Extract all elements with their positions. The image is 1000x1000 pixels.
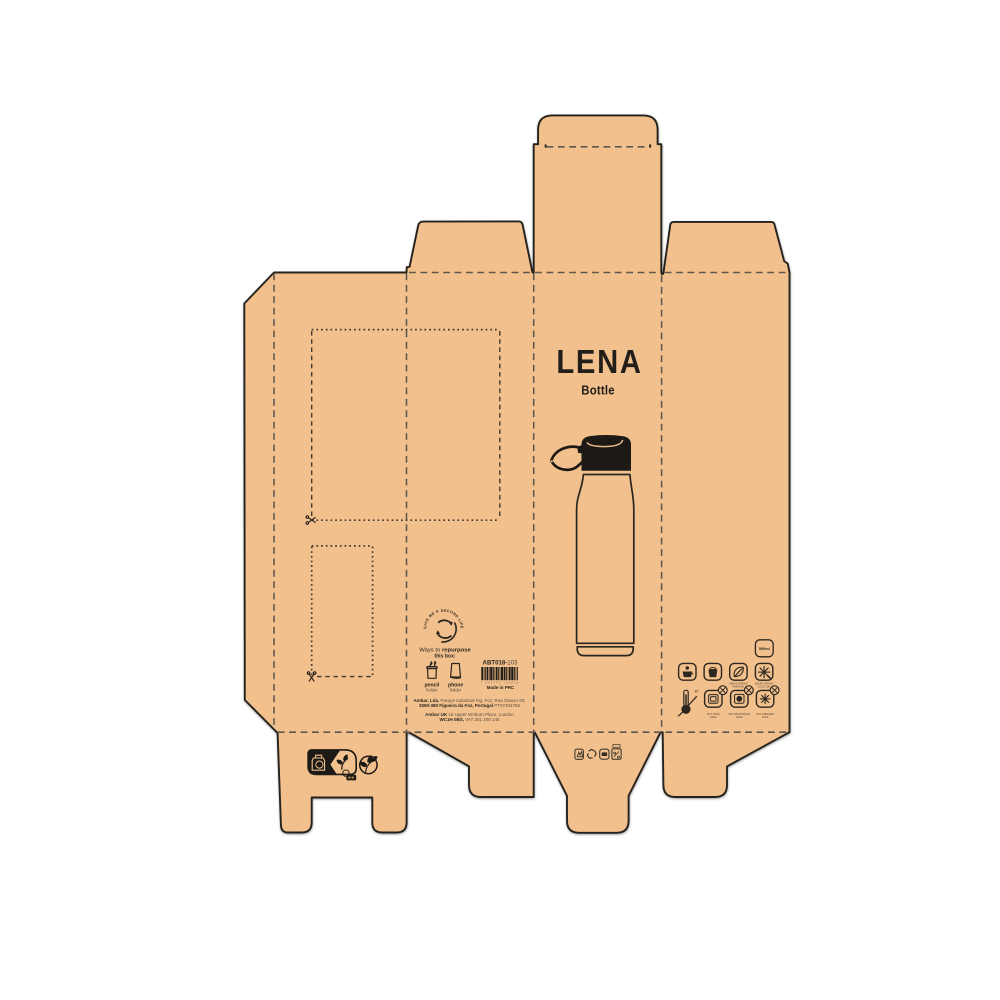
svg-text:holder: holder [426,687,438,692]
svg-text:Bottle: Bottle [581,383,615,398]
svg-text:Ways to repurpose: Ways to repurpose [419,647,471,653]
svg-text:SAFE: SAFE [710,716,717,719]
svg-text:holder: holder [450,687,462,692]
svg-text:7 893343 158836: 7 893343 158836 [480,680,519,684]
svg-text:LENA: LENA [556,343,642,380]
svg-text:90°: 90° [695,689,701,693]
svg-text:WARM 6H: WARM 6H [733,686,745,689]
svg-text:WC1H 0BS, VAT 301 208 145: WC1H 0BS, VAT 301 208 145 [439,717,500,722]
svg-text:SAFE: SAFE [762,716,769,719]
svg-text:Made in PRC: Made in PRC [487,685,515,690]
svg-text:this box:: this box: [434,654,456,660]
svg-text:500ml: 500ml [759,647,770,651]
svg-text:SAFE: SAFE [736,716,743,719]
svg-text:3090-380 Figueira da Foz, Port: 3090-380 Figueira da Foz, Portugal PT074… [419,703,521,708]
svg-text:COLD 12H: COLD 12H [758,686,770,689]
svg-text:ABT018-103: ABT018-103 [483,659,519,666]
